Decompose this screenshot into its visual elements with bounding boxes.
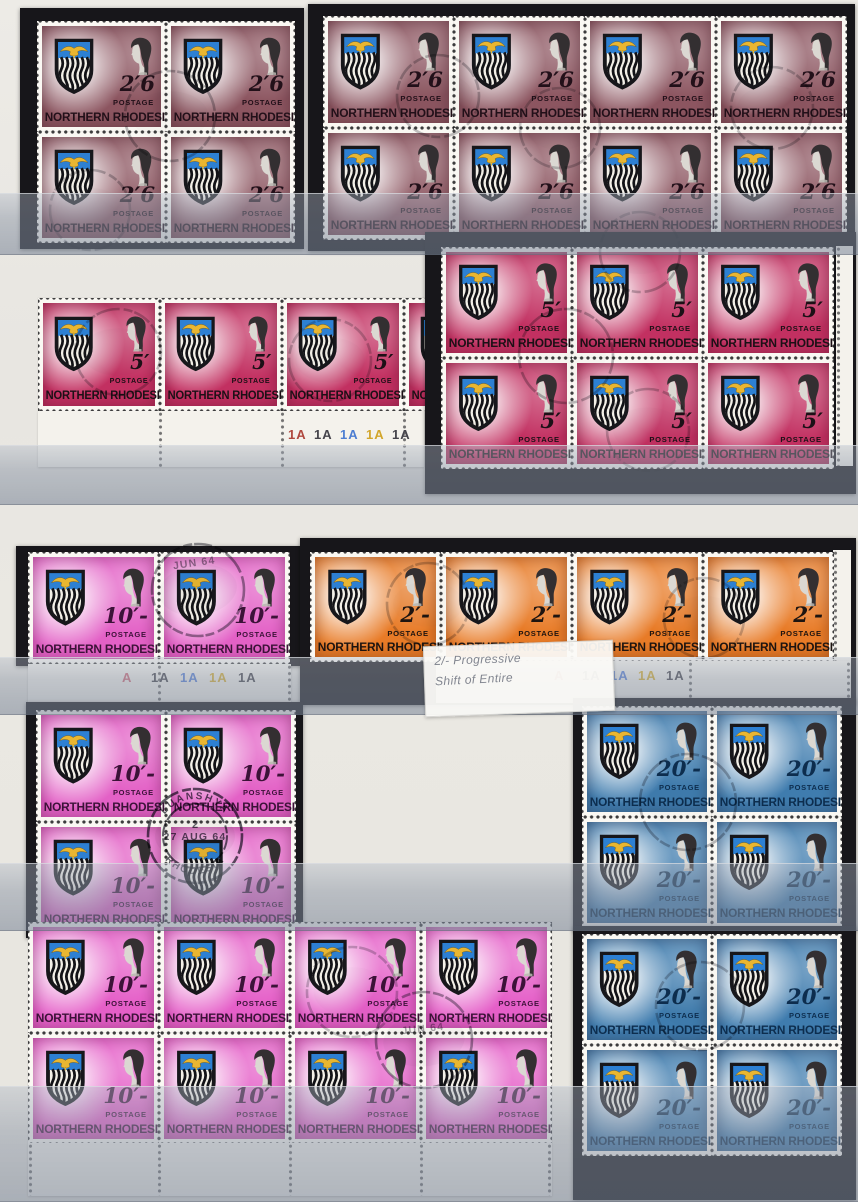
coat-of-arms-shield-icon [436, 938, 481, 997]
stamp-face: 10′- POSTAGE NORTHERN RHODESIA [33, 927, 154, 1028]
coat-of-arms-shield-icon [338, 32, 383, 91]
stamp-20s-block-of-4-upper: 20′- POSTAGE NORTHERN RHODESIA [582, 706, 712, 817]
postage-label: POSTAGE [498, 1000, 539, 1008]
denomination-value: 10′- [234, 606, 279, 628]
note-line: 2/- Progressive [434, 648, 606, 668]
stamp-face: 10′- POSTAGE NORTHERN RHODESIA [33, 557, 154, 659]
stamp-2s6d-block-of-8: 2′6 POSTAGE NORTHERN RHODESIA [716, 16, 847, 128]
stamp-10s-marginal-pair: 10′- POSTAGE NORTHERN RHODESIA [28, 552, 159, 664]
denomination-value: 5′ [374, 352, 393, 372]
stamp-face: 2′- POSTAGE NORTHERN RHODESIA [708, 557, 829, 657]
coat-of-arms-shield-icon [469, 32, 514, 91]
stamp-face: 10′- POSTAGE NORTHERN RHODESIA [164, 557, 285, 659]
stamp-2s6d-block-of-8: 2′6 POSTAGE NORTHERN RHODESIA [323, 16, 454, 128]
stamp-face: 2′- POSTAGE NORTHERN RHODESIA [315, 557, 436, 657]
postage-label: POSTAGE [236, 1000, 277, 1008]
stamp-face: 2′6 POSTAGE NORTHERN RHODESIA [42, 26, 161, 127]
stamp-10s-marginal-block-of-8: 10′- POSTAGE NORTHERN RHODESIA [159, 922, 290, 1033]
stockbook-film-strip [0, 1086, 858, 1202]
handwritten-note: 2/- ProgressiveShift of Entire [423, 640, 615, 718]
country-name: NORTHERN RHODESIA [174, 801, 288, 813]
country-name: NORTHERN RHODESIA [331, 107, 446, 119]
postage-label: POSTAGE [789, 784, 830, 792]
stamp-2s6d-block-of-8: 2′6 POSTAGE NORTHERN RHODESIA [585, 16, 716, 128]
plate-number: 1A [340, 427, 359, 442]
coat-of-arms-shield-icon [456, 568, 501, 626]
country-name: NORTHERN RHODESIA [45, 111, 158, 123]
stamp-10s-block-of-4: 10′- POSTAGE NORTHERN RHODESIA [166, 710, 296, 822]
denomination-value: 5′ [671, 300, 692, 322]
denomination-value: 5′ [252, 352, 271, 372]
denomination-value: 10′- [496, 975, 541, 997]
postage-label: POSTAGE [780, 630, 821, 638]
postage-label: POSTAGE [354, 378, 393, 385]
postage-label: POSTAGE [387, 630, 428, 638]
postage-label: POSTAGE [110, 378, 149, 385]
country-name: NORTHERN RHODESIA [711, 641, 826, 653]
country-name: NORTHERN RHODESIA [429, 1012, 544, 1024]
coat-of-arms-shield-icon [456, 374, 501, 433]
postage-label: POSTAGE [113, 789, 154, 797]
stamp-5s-block-of-6: 5′ POSTAGE NORTHERN RHODESIA [572, 247, 703, 358]
country-name: NORTHERN RHODESIA [36, 643, 151, 655]
country-name: NORTHERN RHODESIA [318, 641, 433, 653]
stamp-face: 5′ POSTAGE NORTHERN RHODESIA [165, 303, 277, 406]
postage-label: POSTAGE [649, 325, 690, 333]
denomination-value: 2′6 [669, 70, 705, 92]
stamp-face: 20′- POSTAGE NORTHERN RHODESIA [717, 939, 837, 1040]
stamp-10s-marginal-pair: 10′- POSTAGE NORTHERN RHODESIA [159, 552, 290, 664]
denomination-value: 5′ [540, 300, 561, 322]
stamp-2s-marginal-strip-of-4: 2′- POSTAGE NORTHERN RHODESIA [703, 552, 834, 662]
denomination-value: 2′6 [249, 74, 284, 95]
postage-label: POSTAGE [793, 95, 834, 103]
stamp-2s6d-block-of-4: 2′6 POSTAGE NORTHERN RHODESIA [37, 21, 166, 132]
country-name: NORTHERN RHODESIA [44, 801, 158, 813]
stamp-10s-marginal-block-of-8: 10′- POSTAGE NORTHERN RHODESIA [290, 922, 421, 1033]
stamp-2s6d-block-of-8: 2′6 POSTAGE NORTHERN RHODESIA [454, 16, 585, 128]
note-line: Shift of Entire [435, 665, 607, 688]
country-name: NORTHERN RHODESIA [167, 1012, 282, 1024]
coat-of-arms-shield-icon [727, 950, 771, 1009]
stamp-face: 10′- POSTAGE NORTHERN RHODESIA [41, 715, 161, 817]
denomination-value: 10′- [234, 975, 279, 997]
postage-label: POSTAGE [232, 378, 271, 385]
stamp-20s-block-of-4-upper: 20′- POSTAGE NORTHERN RHODESIA [712, 706, 842, 817]
country-name: NORTHERN RHODESIA [449, 337, 564, 349]
stamp-face: 20′- POSTAGE NORTHERN RHODESIA [587, 711, 707, 812]
denomination-value: 10′- [103, 606, 148, 628]
country-name: NORTHERN RHODESIA [590, 1024, 704, 1036]
stamp-face: 10′- POSTAGE NORTHERN RHODESIA [426, 927, 547, 1028]
stamp-face: 10′- POSTAGE NORTHERN RHODESIA [164, 927, 285, 1028]
coat-of-arms-shield-icon [181, 37, 225, 96]
coat-of-arms-shield-icon [297, 314, 338, 374]
country-name: NORTHERN RHODESIA [720, 796, 834, 808]
coat-of-arms-shield-icon [52, 37, 96, 96]
stamp-20s-block-of-4-lower: 20′- POSTAGE NORTHERN RHODESIA [712, 934, 842, 1045]
denomination-value: 20′- [657, 759, 701, 780]
stamp-10s-marginal-block-of-8: 10′- POSTAGE NORTHERN RHODESIA [28, 922, 159, 1033]
coat-of-arms-shield-icon [305, 938, 350, 997]
coat-of-arms-shield-icon [51, 726, 95, 785]
stockbook-page: 2′6 POSTAGE NORTHERN RHODESIA [0, 0, 858, 1200]
country-name: NORTHERN RHODESIA [720, 1024, 834, 1036]
country-name: NORTHERN RHODESIA [46, 391, 152, 403]
stamp-face: 20′- POSTAGE NORTHERN RHODESIA [717, 711, 837, 812]
stamp-face: 5′ POSTAGE NORTHERN RHODESIA [446, 252, 567, 353]
denomination-value: 2′- [400, 605, 430, 627]
denomination-value: 2′6 [407, 70, 443, 92]
postage-label: POSTAGE [780, 436, 821, 444]
denomination-value: 5′ [802, 300, 823, 322]
country-name: NORTHERN RHODESIA [462, 107, 577, 119]
denomination-value: 20′- [657, 987, 701, 1008]
stamp-face: 2′6 POSTAGE NORTHERN RHODESIA [459, 21, 580, 123]
country-name: NORTHERN RHODESIA [168, 391, 274, 403]
denomination-value: 10′- [241, 764, 285, 785]
postage-label: POSTAGE [242, 99, 283, 107]
postage-label: POSTAGE [518, 436, 559, 444]
stockbook-film-strip [0, 445, 858, 505]
denomination-value: 5′ [130, 352, 149, 372]
country-name: NORTHERN RHODESIA [580, 337, 695, 349]
postage-label: POSTAGE [531, 95, 572, 103]
coat-of-arms-shield-icon [175, 314, 216, 374]
stamp-5s-marginal-strip: 5′ POSTAGE NORTHERN RHODESIA [38, 298, 160, 411]
country-name: NORTHERN RHODESIA [174, 111, 287, 123]
postage-label: POSTAGE [243, 789, 284, 797]
coat-of-arms-shield-icon [325, 568, 370, 626]
denomination-value: 5′ [671, 411, 692, 433]
coat-of-arms-shield-icon [53, 314, 94, 374]
postage-label: POSTAGE [649, 436, 690, 444]
perforation-line [836, 246, 841, 466]
denomination-value: 10′- [103, 975, 148, 997]
coat-of-arms-shield-icon [727, 722, 771, 781]
plate-number: 1A [314, 427, 333, 442]
postage-label: POSTAGE [367, 1000, 408, 1008]
postage-label: POSTAGE [649, 630, 690, 638]
denomination-value: 2′- [793, 605, 823, 627]
plate-number: 1A [366, 427, 385, 442]
coat-of-arms-shield-icon [43, 938, 88, 997]
stockbook-film-strip [0, 863, 858, 931]
coat-of-arms-shield-icon [174, 568, 219, 627]
postage-label: POSTAGE [105, 1000, 146, 1008]
stamp-5s-marginal-strip: 5′ POSTAGE NORTHERN RHODESIA [282, 298, 404, 411]
denomination-value: 2′6 [538, 70, 574, 92]
coat-of-arms-shield-icon [587, 568, 632, 626]
stamp-face: 2′6 POSTAGE NORTHERN RHODESIA [590, 21, 711, 123]
stamp-face: 5′ POSTAGE NORTHERN RHODESIA [287, 303, 399, 406]
coat-of-arms-shield-icon [731, 32, 776, 91]
stamp-10s-block-of-4: 10′- POSTAGE NORTHERN RHODESIA [36, 710, 166, 822]
country-name: NORTHERN RHODESIA [167, 643, 282, 655]
stamp-5s-block-of-6: 5′ POSTAGE NORTHERN RHODESIA [703, 247, 834, 358]
postage-label: POSTAGE [789, 1012, 830, 1020]
country-name: NORTHERN RHODESIA [711, 337, 826, 349]
stamp-2s-marginal-strip-of-4: 2′- POSTAGE NORTHERN RHODESIA [310, 552, 441, 662]
postage-label: POSTAGE [105, 631, 146, 639]
postage-label: POSTAGE [518, 325, 559, 333]
denomination-value: 2′- [531, 605, 561, 627]
coat-of-arms-shield-icon [587, 374, 632, 433]
denomination-value: 5′ [802, 411, 823, 433]
coat-of-arms-shield-icon [456, 263, 501, 322]
postage-label: POSTAGE [662, 95, 703, 103]
stamp-face: 20′- POSTAGE NORTHERN RHODESIA [587, 939, 707, 1040]
country-name: NORTHERN RHODESIA [36, 1012, 151, 1024]
stamp-20s-block-of-4-lower: 20′- POSTAGE NORTHERN RHODESIA [582, 934, 712, 1045]
denomination-value: 2′6 [800, 70, 836, 92]
stamp-face: 10′- POSTAGE NORTHERN RHODESIA [295, 927, 416, 1028]
denomination-value: 5′ [540, 411, 561, 433]
postage-label: POSTAGE [400, 95, 441, 103]
coat-of-arms-shield-icon [718, 263, 763, 322]
postage-label: POSTAGE [518, 630, 559, 638]
plate-number: 1A [288, 427, 307, 442]
postage-label: POSTAGE [659, 784, 700, 792]
coat-of-arms-shield-icon [43, 568, 88, 627]
stamp-10s-marginal-block-of-8: 10′- POSTAGE NORTHERN RHODESIA [421, 922, 552, 1033]
postage-label: POSTAGE [659, 1012, 700, 1020]
sheet-side-margin [836, 246, 853, 466]
stamp-face: 5′ POSTAGE NORTHERN RHODESIA [708, 252, 829, 353]
stamp-5s-marginal-strip: 5′ POSTAGE NORTHERN RHODESIA [160, 298, 282, 411]
denomination-value: 10′- [111, 764, 155, 785]
denomination-value: 20′- [787, 759, 831, 780]
postage-label: POSTAGE [113, 99, 154, 107]
coat-of-arms-shield-icon [174, 938, 219, 997]
country-name: NORTHERN RHODESIA [590, 796, 704, 808]
coat-of-arms-shield-icon [597, 950, 641, 1009]
coat-of-arms-shield-icon [718, 568, 763, 626]
plate-number: 1A [392, 427, 411, 442]
denomination-value: 10′- [365, 975, 410, 997]
coat-of-arms-shield-icon [181, 726, 225, 785]
country-name: NORTHERN RHODESIA [593, 107, 708, 119]
country-name: NORTHERN RHODESIA [290, 391, 396, 403]
denomination-value: 20′- [787, 987, 831, 1008]
stamp-face: 2′6 POSTAGE NORTHERN RHODESIA [171, 26, 290, 127]
stamp-face: 5′ POSTAGE NORTHERN RHODESIA [577, 252, 698, 353]
postage-label: POSTAGE [780, 325, 821, 333]
coat-of-arms-shield-icon [597, 722, 641, 781]
coat-of-arms-shield-icon [600, 32, 645, 91]
country-name: NORTHERN RHODESIA [298, 1012, 413, 1024]
coat-of-arms-shield-icon [587, 263, 632, 322]
postage-label: POSTAGE [236, 631, 277, 639]
denomination-value: 2′- [662, 605, 692, 627]
stamp-5s-block-of-6: 5′ POSTAGE NORTHERN RHODESIA [441, 247, 572, 358]
country-name: NORTHERN RHODESIA [724, 107, 839, 119]
stamp-2s6d-block-of-4: 2′6 POSTAGE NORTHERN RHODESIA [166, 21, 295, 132]
stamp-face: 10′- POSTAGE NORTHERN RHODESIA [171, 715, 291, 817]
denomination-value: 2′6 [120, 74, 155, 95]
stamp-face: 5′ POSTAGE NORTHERN RHODESIA [43, 303, 155, 406]
coat-of-arms-shield-icon [718, 374, 763, 433]
stamp-face: 2′6 POSTAGE NORTHERN RHODESIA [328, 21, 449, 123]
stockbook-film-strip [0, 193, 858, 255]
stamp-face: 2′6 POSTAGE NORTHERN RHODESIA [721, 21, 842, 123]
